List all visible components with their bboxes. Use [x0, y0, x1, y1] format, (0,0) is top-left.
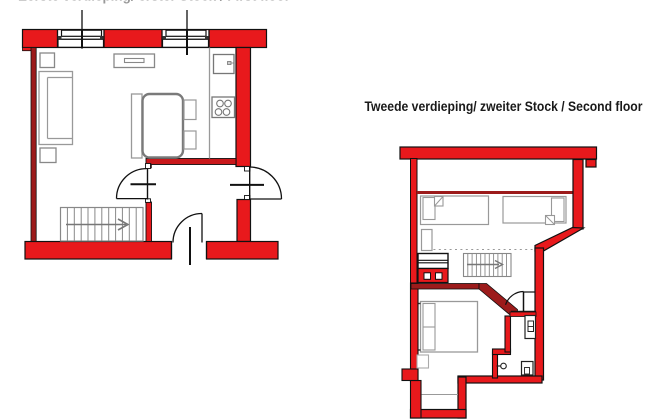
svg-text:Tweede verdieping/ zweiter Sto: Tweede verdieping/ zweiter Stock / Secon… [365, 98, 643, 114]
svg-text:Eerste verdieping/ erster Stoc: Eerste verdieping/ erster Stock / First … [18, 0, 291, 4]
